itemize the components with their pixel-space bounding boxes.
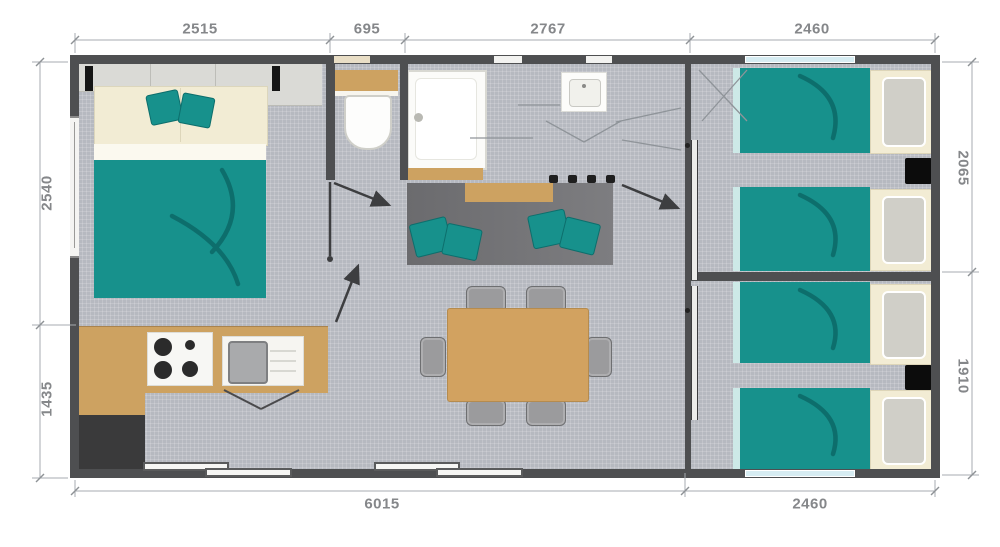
- sofa-knob: [606, 175, 615, 183]
- living-window: [436, 468, 523, 477]
- dining-chair: [526, 399, 566, 426]
- double-bed-sheet-band: [94, 144, 266, 160]
- shower-cabinet: [405, 168, 483, 180]
- dim-label-bottom-1: 6015: [364, 496, 399, 513]
- dining-chair: [586, 337, 612, 377]
- dining-chair: [420, 337, 446, 377]
- kitchen-sink-bowl: [228, 341, 268, 384]
- sofa-knob: [549, 175, 558, 183]
- twin-bed: [733, 187, 870, 271]
- washbasin-faucet: [582, 84, 586, 88]
- double-bed-duvet: [94, 160, 266, 298]
- bed-pillow: [882, 77, 926, 147]
- dim-label-top-3: 2767: [530, 21, 565, 38]
- wall-light-mark: [85, 66, 93, 91]
- stove-burner: [154, 338, 172, 356]
- stove-burner: [185, 340, 195, 350]
- exterior-wall-right: [931, 55, 940, 478]
- door-stop: [685, 308, 690, 313]
- master-window-pane: [74, 122, 75, 248]
- toilet-bowl: [344, 95, 392, 150]
- twin-bed: [733, 388, 870, 469]
- dining-chair: [466, 399, 506, 426]
- washbasin-bowl: [569, 79, 601, 107]
- dim-label-top-2: 695: [354, 21, 381, 38]
- wc-window: [334, 56, 370, 63]
- dim-label-right-1: 2065: [955, 150, 972, 185]
- dim-label-right-2: 1910: [955, 358, 972, 393]
- bed-pillow: [882, 291, 926, 359]
- refrigerator: [79, 415, 145, 470]
- twin-bed-fold: [733, 187, 740, 271]
- twin-bed-fold: [733, 388, 740, 469]
- sliding-door: [691, 286, 698, 420]
- dim-label-top-4: 2460: [794, 21, 829, 38]
- sink-drainer-line: [270, 370, 296, 372]
- living-window: [205, 468, 292, 477]
- nightstand: [905, 365, 932, 390]
- dim-label-left-2: 1435: [39, 381, 56, 416]
- shower-tray-inner: [415, 78, 477, 160]
- top-wall-opening: [494, 56, 522, 63]
- interior-wall-bedroom: [326, 55, 335, 180]
- nightstand: [905, 158, 932, 184]
- twin-bed: [733, 282, 870, 363]
- interior-wall-wc: [400, 55, 408, 180]
- twin-bed-fold: [733, 282, 740, 363]
- bedroom1-window: [745, 56, 855, 63]
- sofa-headrest: [465, 183, 553, 202]
- dining-table: [447, 308, 589, 402]
- dim-label-bottom-2: 2460: [792, 496, 827, 513]
- sliding-door: [691, 140, 698, 280]
- dim-label-left-1: 2540: [39, 175, 56, 210]
- sofa-knob: [587, 175, 596, 183]
- toilet-cistern: [333, 70, 398, 91]
- sink-drainer-line: [270, 350, 296, 352]
- kitchen-counter-side: [79, 392, 145, 415]
- twin-bed: [733, 68, 870, 153]
- door-stop: [685, 143, 690, 148]
- wall-light-mark: [272, 66, 280, 91]
- dim-label-top-1: 2515: [182, 21, 217, 38]
- bed-cushion: [177, 92, 215, 129]
- bedroom2-window: [745, 470, 855, 477]
- bed-pillow: [882, 397, 926, 465]
- stove-burner: [154, 361, 172, 379]
- bedroom-divider-wall: [685, 272, 940, 281]
- bed-pillow: [882, 196, 926, 264]
- stove-burner: [182, 361, 198, 377]
- twin-bed-fold: [733, 68, 740, 153]
- shower-drain: [414, 113, 423, 122]
- sink-drainer-line: [270, 360, 296, 362]
- sofa-knob: [568, 175, 577, 183]
- floor-plan: 2515 695 2767 2460 6015 2460 2540 1435 2…: [0, 0, 1000, 547]
- top-wall-opening: [586, 56, 612, 63]
